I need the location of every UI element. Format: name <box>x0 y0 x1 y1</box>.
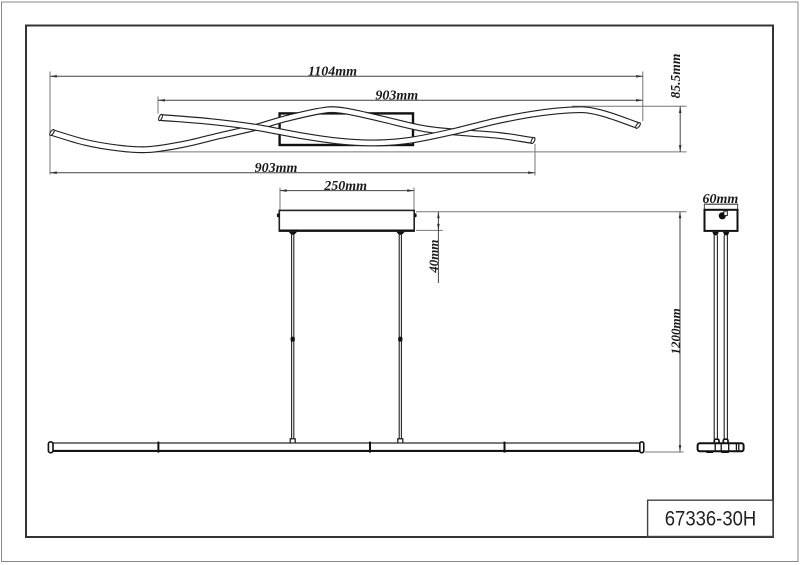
svg-text:40mm: 40mm <box>426 240 441 274</box>
svg-text:1104mm: 1104mm <box>308 65 357 80</box>
svg-text:250mm: 250mm <box>323 179 367 194</box>
svg-text:1200mm: 1200mm <box>668 308 683 354</box>
svg-text:85.5mm: 85.5mm <box>668 54 683 99</box>
svg-text:903mm: 903mm <box>255 161 298 176</box>
svg-text:67336-30H: 67336-30H <box>665 507 756 531</box>
svg-text:903mm: 903mm <box>375 89 418 104</box>
